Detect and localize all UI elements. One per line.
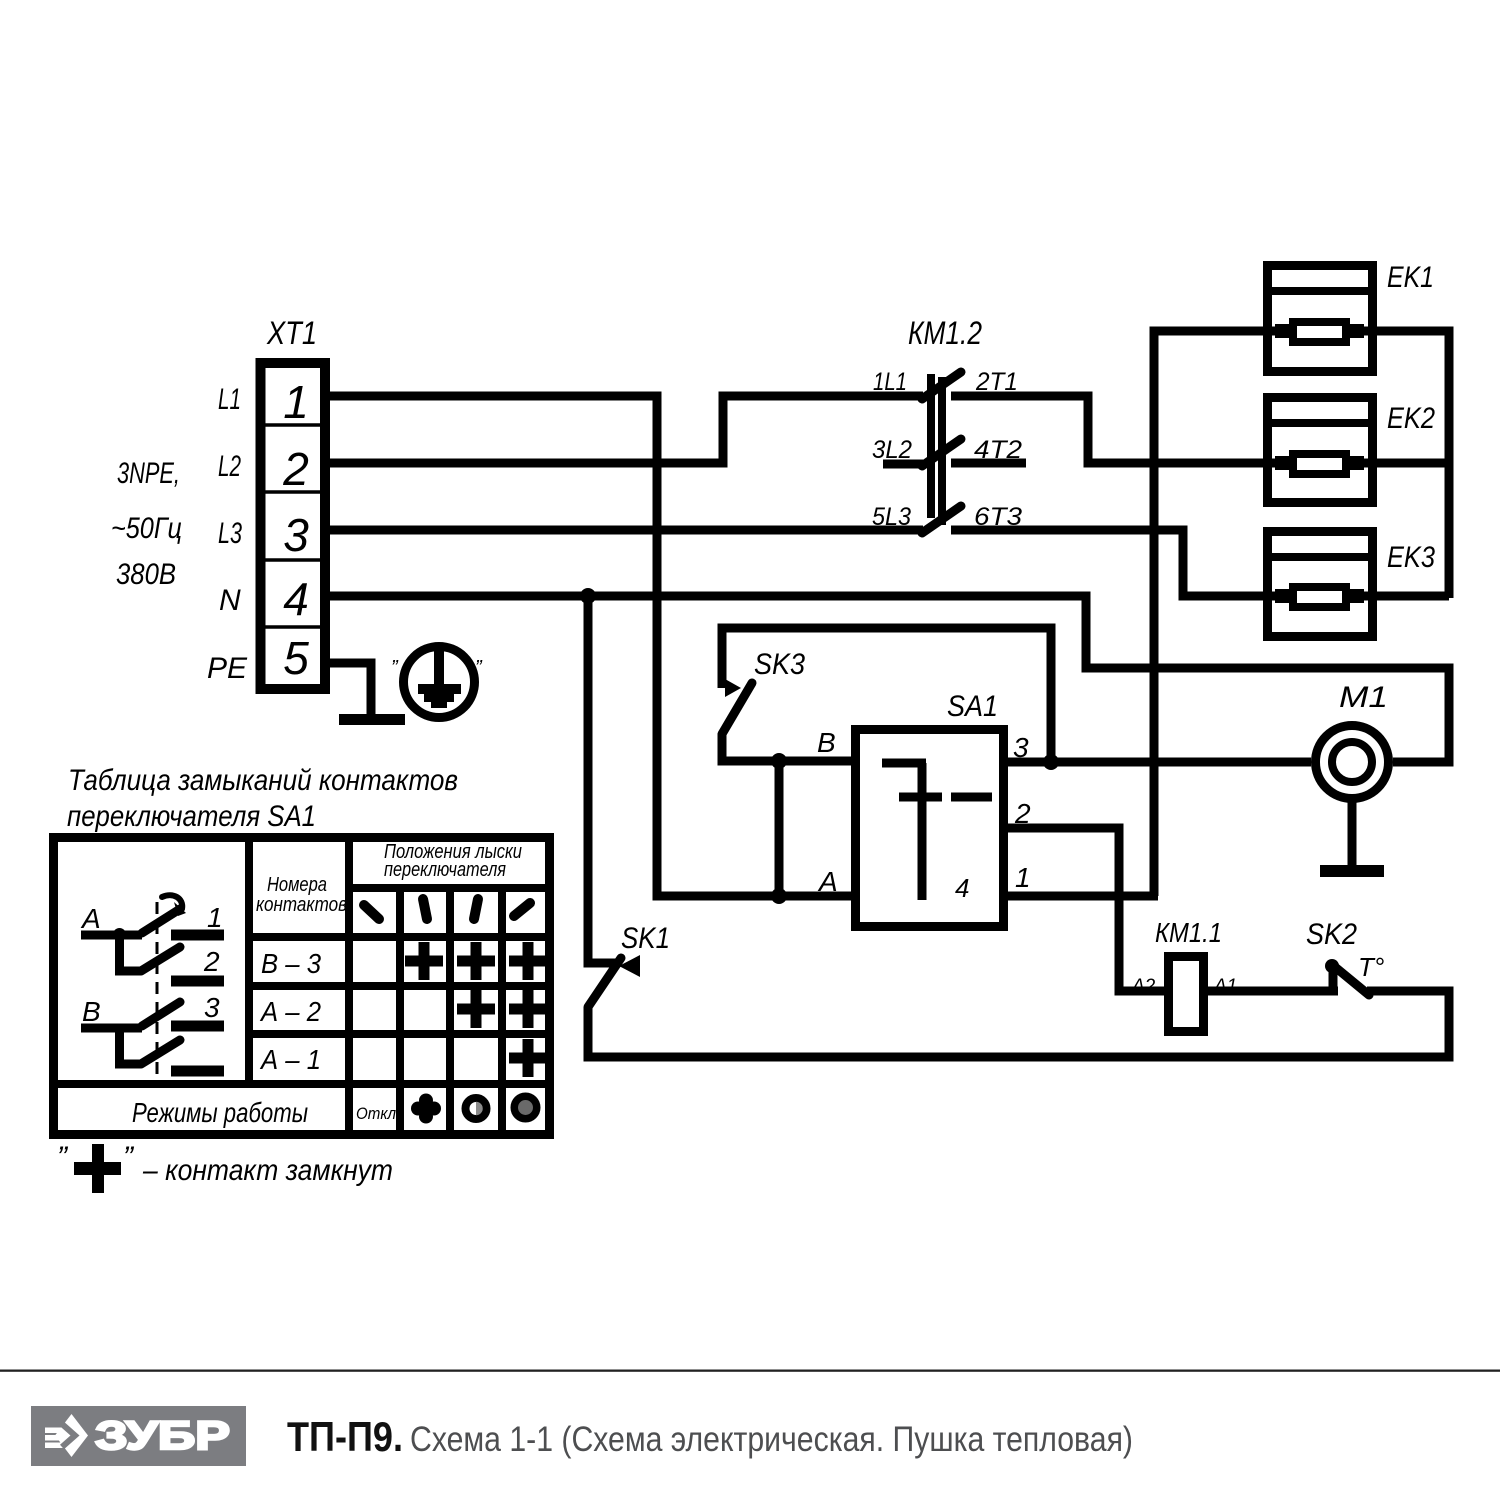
svg-text:5: 5: [283, 632, 309, 684]
svg-text:EK2: EK2: [1387, 402, 1435, 435]
svg-text:T°: T°: [1358, 952, 1384, 982]
svg-text:В: В: [82, 996, 101, 1027]
svg-text:1L1: 1L1: [873, 368, 907, 396]
svg-text:SK3: SK3: [754, 648, 805, 681]
svg-text:3: 3: [204, 992, 220, 1023]
svg-text:КМ1.1: КМ1.1: [1155, 917, 1222, 948]
svg-text:B: B: [817, 727, 836, 758]
svg-text:EK3: EK3: [1387, 541, 1435, 574]
svg-text:ЗУБР: ЗУБР: [95, 1414, 230, 1458]
svg-text:2: 2: [203, 946, 220, 977]
svg-text:4: 4: [955, 873, 969, 903]
svg-text:~50Гц: ~50Гц: [111, 512, 182, 545]
svg-text:L3: L3: [218, 517, 242, 550]
svg-text:L1: L1: [218, 383, 241, 416]
svg-text:3: 3: [283, 509, 309, 561]
svg-text:А – 1: А – 1: [259, 1044, 321, 1075]
svg-text:XT1: XT1: [266, 315, 317, 351]
svg-text:А: А: [817, 866, 838, 897]
svg-text:4: 4: [283, 573, 309, 625]
svg-text:Номера: Номера: [267, 874, 327, 896]
svg-text:380В: 380В: [116, 558, 176, 591]
svg-text:В – 3: В – 3: [261, 948, 321, 979]
svg-text:А: А: [80, 903, 101, 934]
svg-text:N: N: [219, 584, 241, 617]
svg-text:M1: M1: [1339, 681, 1388, 714]
svg-text:КМ1.2: КМ1.2: [908, 315, 982, 351]
svg-text:1: 1: [1015, 862, 1031, 893]
svg-text:контактов: контактов: [256, 894, 347, 916]
svg-text:ТП-П9.: ТП-П9.: [287, 1413, 403, 1460]
svg-text:Схема 1-1 (Схема электрическая: Схема 1-1 (Схема электрическая. Пушка те…: [410, 1420, 1133, 1459]
svg-text:3NPE,: 3NPE,: [117, 457, 180, 490]
svg-text:А – 2: А – 2: [259, 996, 321, 1027]
svg-text:SK2: SK2: [1306, 918, 1357, 951]
svg-text:SK1: SK1: [621, 922, 670, 955]
svg-text:5L3: 5L3: [872, 503, 911, 531]
svg-text:2: 2: [282, 443, 309, 495]
svg-text:SA1: SA1: [947, 690, 998, 723]
svg-text:1: 1: [207, 902, 223, 933]
svg-text:– контакт замкнут: – контакт замкнут: [142, 1154, 393, 1187]
svg-text:PE: PE: [207, 652, 248, 685]
svg-text:1: 1: [283, 376, 309, 428]
svg-text:переключателя SA1: переключателя SA1: [67, 800, 316, 833]
svg-text:L2: L2: [218, 450, 241, 483]
svg-text:EK1: EK1: [1387, 261, 1434, 294]
svg-text:Режимы работы: Режимы работы: [132, 1097, 308, 1128]
svg-text:Таблица замыканий контактов: Таблица замыканий контактов: [68, 764, 458, 797]
svg-text:переключателя: переключателя: [384, 859, 506, 881]
svg-text:A2: A2: [1131, 976, 1156, 997]
svg-text:Откл: Откл: [356, 1104, 396, 1123]
